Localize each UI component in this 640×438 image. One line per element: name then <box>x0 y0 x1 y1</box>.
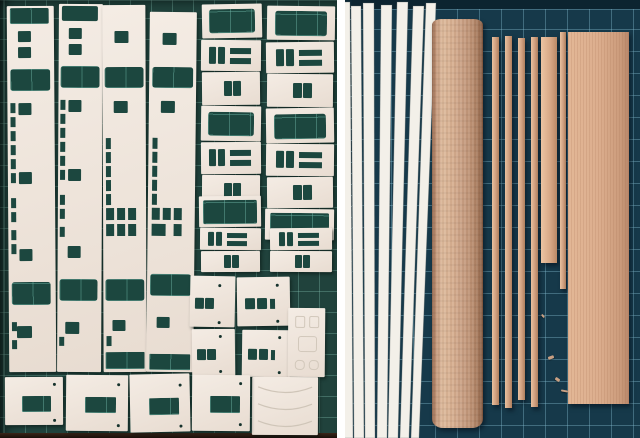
locating-hole <box>276 320 279 323</box>
window-cutout <box>60 128 65 138</box>
panel-with-holes <box>190 276 236 328</box>
locating-hole <box>117 424 120 427</box>
louver-panel <box>200 228 261 250</box>
window-cutout <box>61 66 100 88</box>
arc-scored-sheet <box>252 377 318 435</box>
window-cutout <box>152 224 166 236</box>
end-panel <box>201 106 261 142</box>
window-cutout <box>208 232 214 246</box>
window-cutout <box>298 233 319 238</box>
panel-with-holes <box>237 277 291 327</box>
window-cutout <box>150 274 191 296</box>
window-cutout <box>259 349 268 360</box>
scored-outline <box>295 360 305 370</box>
locating-hole <box>218 284 221 287</box>
window-cutout <box>195 298 204 309</box>
window-cutout <box>128 208 136 220</box>
window-cutout <box>60 100 65 110</box>
locating-hole <box>219 335 222 338</box>
left-photo <box>0 0 337 438</box>
window-cutout <box>230 58 251 64</box>
window-cutout <box>299 50 322 56</box>
window-cutout <box>209 47 216 64</box>
window-cutout <box>107 336 112 346</box>
window-cutout <box>163 208 171 220</box>
window-cutout <box>227 241 247 246</box>
window-cutout <box>174 224 182 236</box>
scored-outline <box>295 316 305 328</box>
window-cutout <box>299 162 322 168</box>
wood-batten <box>505 36 512 408</box>
louver-panel <box>266 42 334 74</box>
window-frame <box>199 196 261 228</box>
window-cutout <box>105 67 144 88</box>
wood-batten <box>531 37 538 407</box>
window-cutout <box>18 103 31 115</box>
locating-hole <box>278 371 281 374</box>
window-cutout <box>152 194 157 205</box>
window-cutout <box>10 8 49 24</box>
window-cutout <box>218 149 225 166</box>
slotted-plate <box>192 375 250 431</box>
window-cutout <box>149 398 179 416</box>
slotted-plate <box>5 377 63 425</box>
window-cutout <box>11 198 16 208</box>
veneer-sheet <box>568 32 629 404</box>
window-cutout <box>232 255 239 268</box>
window-cutout <box>298 241 319 246</box>
window-panel <box>202 72 260 106</box>
window-panel <box>270 251 332 272</box>
window-cutout <box>60 227 65 237</box>
window-cutout <box>163 33 177 45</box>
window-cutout <box>106 352 145 369</box>
window-cutout <box>114 31 128 43</box>
window-cutout <box>295 255 302 268</box>
window-cutout <box>152 152 157 163</box>
window-cutout <box>152 208 160 220</box>
window-cutout <box>152 166 157 177</box>
window-cutout <box>60 142 65 152</box>
window-cutout <box>117 224 125 236</box>
window-cutout <box>19 249 32 261</box>
panel-with-holes <box>242 330 291 378</box>
right-photo <box>345 0 640 438</box>
window-cutout <box>230 160 251 166</box>
window-cutout <box>11 131 16 141</box>
window-cutout <box>11 212 16 222</box>
window-cutout <box>286 151 294 168</box>
window-cutout <box>218 47 225 64</box>
window-cutout <box>106 224 114 236</box>
window-cutout <box>117 208 125 220</box>
window-cutout <box>60 156 65 166</box>
locating-hole <box>239 382 242 385</box>
window-cutout <box>19 172 32 184</box>
window-panel <box>267 74 333 107</box>
window-cutout <box>10 117 15 127</box>
window-cutout <box>227 233 247 238</box>
window-cutout <box>85 397 116 413</box>
locating-hole <box>218 321 221 324</box>
window-cutout <box>208 112 254 137</box>
window-cutout <box>224 255 231 268</box>
window-cutout <box>216 232 222 246</box>
end-panel <box>202 3 263 38</box>
window-cutout <box>22 396 51 412</box>
window-cutout <box>293 83 302 98</box>
locating-hole <box>179 384 182 387</box>
window-cutout <box>68 100 81 112</box>
end-panel <box>267 6 335 41</box>
window-cutout <box>106 208 114 220</box>
window-cutout <box>303 185 312 200</box>
window-cutout <box>152 138 157 149</box>
window-cutout <box>105 279 144 301</box>
louver-panel <box>201 142 261 174</box>
window-cutout <box>68 169 81 181</box>
window-cutout <box>17 326 32 338</box>
scored-detail-sheet <box>288 308 326 377</box>
window-cutout <box>303 255 310 268</box>
window-cutout <box>207 349 216 360</box>
window-cutout <box>152 180 157 191</box>
window-panel <box>267 177 333 208</box>
window-cutout <box>60 170 65 180</box>
window-cutout <box>106 166 111 177</box>
window-cutout <box>209 149 216 166</box>
window-cutout <box>230 150 251 156</box>
veneer-roll <box>432 19 483 428</box>
window-cutout <box>59 279 97 301</box>
window-cutout <box>65 322 79 334</box>
window-cutout <box>174 208 182 220</box>
window-cutout <box>10 103 15 113</box>
scored-outline <box>298 336 317 352</box>
locating-hole <box>179 425 182 428</box>
window-cutout <box>299 60 322 66</box>
window-cutout <box>60 209 65 219</box>
louver-panel <box>270 228 332 251</box>
window-cutout <box>69 28 82 39</box>
window-cutout <box>279 232 285 246</box>
window-cutout <box>10 69 50 91</box>
window-cutout <box>197 349 206 360</box>
window-cutout <box>69 44 82 55</box>
window-cutout <box>11 244 16 254</box>
window-cutout <box>233 81 241 96</box>
window-cutout <box>18 31 31 42</box>
window-cutout <box>276 151 284 168</box>
window-cutout <box>210 396 240 413</box>
wood-batten <box>518 38 525 400</box>
window-cutout <box>112 320 125 331</box>
window-cutout <box>299 152 322 158</box>
window-cutout <box>62 6 98 21</box>
window-cutout <box>11 159 16 169</box>
end-panel <box>266 108 334 144</box>
car-side-strip-1 <box>7 6 57 372</box>
window-cutout <box>128 224 136 236</box>
panel-with-holes <box>192 329 235 376</box>
locating-hole <box>219 370 222 373</box>
locating-hole <box>276 284 279 287</box>
window-cutout <box>271 350 275 360</box>
wood-strip-wide <box>541 37 557 263</box>
window-cutout <box>11 145 16 155</box>
window-cutout <box>12 340 17 349</box>
window-cutout <box>152 67 193 88</box>
window-cutout <box>106 138 111 149</box>
window-cutout <box>245 298 255 309</box>
window-cutout <box>248 349 257 360</box>
window-cutout <box>275 11 327 37</box>
louver-panel <box>266 144 334 177</box>
window-cutout <box>157 317 170 328</box>
louver-panel <box>201 40 261 72</box>
wood-batten <box>492 37 499 405</box>
car-side-strip-2 <box>57 4 103 372</box>
photo-collage <box>0 0 640 438</box>
window-cutout <box>203 200 257 225</box>
window-cutout <box>293 185 302 200</box>
locating-hole <box>278 336 281 339</box>
scored-arcs <box>252 377 318 435</box>
car-side-strip-3 <box>102 5 146 372</box>
window-cutout <box>12 282 51 305</box>
window-cutout <box>274 114 326 140</box>
window-cutout <box>11 230 16 240</box>
window-cutout <box>114 101 128 113</box>
locating-hole <box>239 423 242 426</box>
locating-hole <box>117 383 120 386</box>
locating-hole <box>53 383 56 386</box>
slotted-plate <box>66 375 128 432</box>
window-cutout <box>303 83 312 98</box>
window-cutout <box>18 47 31 58</box>
window-cutout <box>286 49 294 66</box>
white-strip <box>363 3 375 438</box>
window-cutout <box>161 101 175 113</box>
locating-hole <box>53 419 56 422</box>
scored-outline <box>309 316 319 328</box>
window-cutout <box>149 354 190 370</box>
window-cutout <box>59 337 64 346</box>
window-cutout <box>60 195 65 205</box>
wood-batten <box>560 32 566 289</box>
window-cutout <box>224 81 232 96</box>
window-cutout <box>106 152 111 163</box>
window-cutout <box>270 299 275 309</box>
window-cutout <box>257 298 267 309</box>
window-cutout <box>11 173 16 183</box>
window-cutout <box>68 246 81 258</box>
scored-outline <box>309 360 319 370</box>
window-cutout <box>106 194 111 205</box>
window-cutout <box>287 232 293 246</box>
window-cutout <box>230 48 251 54</box>
window-cutout <box>106 180 111 191</box>
window-cutout <box>205 298 214 309</box>
slotted-plate <box>129 373 190 432</box>
window-panel <box>201 251 260 272</box>
window-cutout <box>209 9 255 34</box>
window-cutout <box>276 49 284 66</box>
window-cutout <box>60 114 65 124</box>
